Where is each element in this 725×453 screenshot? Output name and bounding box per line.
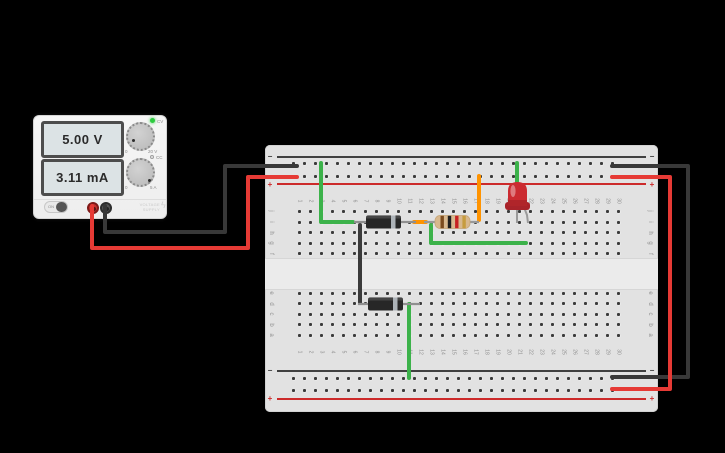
resistor-band-brown <box>441 216 444 228</box>
wire-green-negrail-to-diode-top[interactable] <box>321 163 353 222</box>
diode-top-sheen <box>366 216 401 219</box>
resistor-band-red <box>455 216 458 228</box>
diode-bottom-sheen <box>368 298 403 301</box>
diode-bottom-cathode-stripe <box>393 298 398 311</box>
resistor-band-gold <box>462 216 465 228</box>
wire-black-toprail-to-bottomrail[interactable] <box>612 166 688 377</box>
resistor-band-black <box>448 216 451 228</box>
circuit-layer <box>0 0 725 453</box>
diode-top-cathode-stripe <box>391 216 396 229</box>
wire-red-toprail-to-bottomrail[interactable] <box>612 177 670 389</box>
wire-red-psu-to-pos-rail[interactable] <box>92 177 297 248</box>
led-dome-shade <box>508 200 527 206</box>
led-highlight <box>510 185 515 197</box>
circuit-canvas: 1122334455667788991010111112121313141415… <box>0 0 725 453</box>
